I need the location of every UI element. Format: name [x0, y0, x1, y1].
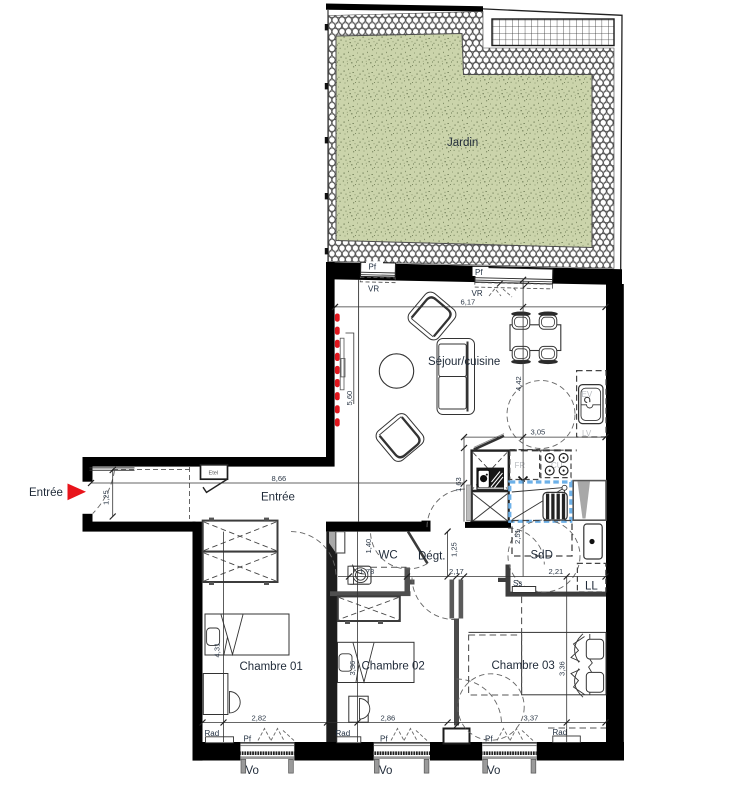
svg-text:WC: WC: [379, 550, 398, 562]
svg-text:Pf: Pf: [475, 268, 483, 277]
svg-text:FR: FR: [515, 461, 526, 470]
svg-text:6,17: 6,17: [461, 298, 476, 307]
svg-text:3,36: 3,36: [348, 661, 357, 676]
svg-text:Pf: Pf: [244, 734, 252, 743]
svg-text:4,42: 4,42: [514, 376, 523, 391]
svg-text:Rad: Rad: [553, 728, 568, 737]
svg-text:Rad: Rad: [205, 729, 220, 738]
svg-text:Jardin: Jardin: [447, 137, 478, 149]
svg-text:Pf: Pf: [369, 262, 377, 271]
svg-text:VR: VR: [368, 285, 379, 294]
svg-text:8,66: 8,66: [272, 474, 287, 483]
svg-text:Vo: Vo: [379, 765, 392, 777]
svg-text:1,40: 1,40: [364, 539, 373, 554]
svg-text:3,36: 3,36: [558, 661, 567, 676]
svg-text:Entrée: Entrée: [29, 487, 63, 499]
svg-text:1,63: 1,63: [454, 477, 463, 492]
svg-text:Vo: Vo: [246, 765, 259, 777]
svg-text:Rad: Rad: [336, 729, 351, 738]
svg-text:Etel: Etel: [209, 470, 219, 476]
svg-text:EV: EV: [582, 390, 593, 399]
svg-text:2,51: 2,51: [513, 529, 522, 544]
svg-text:Pf: Pf: [485, 734, 493, 743]
svg-text:3,37: 3,37: [524, 713, 539, 722]
svg-text:Chambre 03: Chambre 03: [492, 660, 555, 672]
svg-text:4,31: 4,31: [213, 643, 222, 658]
svg-text:3,05: 3,05: [531, 428, 546, 437]
svg-text:Ss: Ss: [513, 579, 522, 588]
svg-text:1,78: 1,78: [360, 567, 375, 576]
svg-text:Pf: Pf: [380, 734, 388, 743]
svg-text:2,21: 2,21: [549, 567, 564, 576]
svg-text:Chambre 01: Chambre 01: [240, 661, 303, 673]
svg-text:Dégt.: Dégt.: [418, 551, 446, 563]
svg-text:2,86: 2,86: [381, 713, 396, 722]
svg-text:5,60: 5,60: [345, 391, 354, 406]
svg-text:SdD: SdD: [531, 550, 553, 562]
svg-text:LL: LL: [585, 581, 598, 593]
svg-text:1,25: 1,25: [450, 542, 459, 557]
svg-text:2,17: 2,17: [449, 567, 464, 576]
svg-text:Entrée: Entrée: [261, 492, 295, 504]
svg-text:Séjour/cuisine: Séjour/cuisine: [428, 356, 500, 368]
svg-text:VR: VR: [472, 289, 483, 298]
svg-text:Vo: Vo: [487, 765, 500, 777]
svg-text:1,25: 1,25: [102, 490, 111, 505]
svg-text:2,82: 2,82: [252, 713, 267, 722]
svg-text:Chambre 02: Chambre 02: [362, 661, 425, 673]
